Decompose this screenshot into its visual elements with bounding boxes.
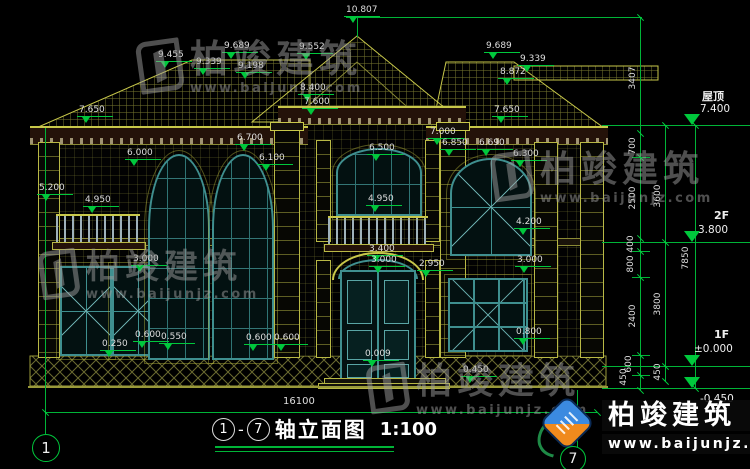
level-name: 2F bbox=[714, 209, 729, 222]
elevation-marker: 3.000 bbox=[517, 256, 543, 265]
elevation-marker: 3.000 bbox=[371, 256, 397, 265]
elevation-marker: 6.690 bbox=[479, 139, 505, 148]
elevation-value: 10.807 bbox=[346, 5, 378, 15]
level-marker-triangle bbox=[684, 231, 700, 242]
elevation-value: 8.872 bbox=[500, 67, 526, 77]
vertical-dimension: 450 bbox=[619, 368, 629, 385]
elevation-value: 7.000 bbox=[430, 127, 456, 137]
dimension-line bbox=[357, 17, 358, 37]
elevation-value: 4.200 bbox=[516, 217, 542, 227]
watermark-url: www.baijunjz.com bbox=[86, 287, 259, 302]
elevation-value: 6.500 bbox=[369, 143, 395, 153]
dimension-line bbox=[215, 451, 394, 452]
watermark-url: www.baijunjz.com bbox=[540, 191, 713, 206]
elevation-marker: 0.550 bbox=[161, 333, 187, 342]
dimension-line bbox=[602, 242, 750, 243]
level-name: 1F bbox=[714, 328, 729, 341]
elevation-marker: 9.689 bbox=[486, 42, 512, 51]
level-marker-triangle bbox=[684, 114, 700, 125]
elevation-marker: 0.009 bbox=[365, 350, 391, 359]
elevation-marker: 6.500 bbox=[369, 144, 395, 153]
elevation-value: 4.950 bbox=[85, 195, 111, 205]
title-dash: - bbox=[238, 420, 244, 439]
elevation-value: 0.550 bbox=[161, 332, 187, 342]
elevation-marker: 4.200 bbox=[516, 218, 542, 227]
title-scale: 1:100 bbox=[380, 419, 437, 440]
watermark: 柏竣建筑www.baijunjz.com bbox=[492, 152, 713, 206]
vertical-dimension: 450 bbox=[653, 363, 663, 380]
watermark-brand: 柏竣建筑 bbox=[602, 400, 750, 431]
watermark: 柏竣建筑www.baijunjz.com bbox=[40, 250, 259, 302]
drawing-title: 1-7 轴立面图 1:100 bbox=[212, 414, 437, 444]
watermark-brand: 柏竣建筑 bbox=[416, 364, 589, 400]
axis-bubble-1: 1 bbox=[32, 434, 60, 462]
elevation-value: 9.339 bbox=[520, 54, 546, 64]
elevation-marker: 3.400 bbox=[369, 245, 395, 254]
elevation-value: 3.400 bbox=[369, 244, 395, 254]
elevation-value: 0.009 bbox=[365, 349, 391, 359]
elevation-value: 0.600 bbox=[246, 333, 272, 343]
elevation-marker: 8.872 bbox=[500, 68, 526, 77]
elevation-value: 6.850 bbox=[442, 138, 468, 148]
elevation-marker: 9.339 bbox=[520, 55, 546, 64]
title-axis-to-bubble: 7 bbox=[247, 418, 270, 441]
level-marker-triangle bbox=[684, 377, 700, 388]
elevation-value: 7.600 bbox=[304, 97, 330, 107]
watermark-brand: 柏竣建筑 bbox=[190, 40, 363, 78]
elevation-marker: 4.950 bbox=[85, 196, 111, 205]
elevation-value: 6.000 bbox=[127, 148, 153, 158]
elevation-marker: 7.000 bbox=[430, 128, 456, 137]
watermark-brand: 柏竣建筑 bbox=[86, 250, 259, 284]
vertical-dimension: 2400 bbox=[628, 305, 638, 328]
overall-dimension: 16100 bbox=[283, 396, 315, 407]
elevation-value: 0.250 bbox=[102, 339, 128, 349]
elevation-value: 6.690 bbox=[479, 138, 505, 148]
elevation-marker: 0.800 bbox=[516, 328, 542, 337]
elevation-marker: 2.950 bbox=[419, 260, 445, 269]
cad-elevation-drawing: 10.8079.5529.4559.3399.6899.1989.6899.33… bbox=[0, 0, 750, 469]
baijun-logo-icon bbox=[37, 248, 81, 301]
dimension-line bbox=[602, 125, 750, 126]
watermark-brand: 柏竣建筑 bbox=[540, 152, 713, 188]
elevation-marker: 0.600 bbox=[274, 334, 300, 343]
elevation-value: 5.200 bbox=[39, 183, 65, 193]
level-marker-triangle bbox=[684, 355, 700, 366]
vertical-dimension: 3407 bbox=[628, 67, 638, 90]
elevation-value: 0.600 bbox=[135, 330, 161, 340]
baijun-logo-icon bbox=[365, 361, 411, 414]
elevation-marker: 6.000 bbox=[127, 149, 153, 158]
axis-bubble-7: 7 bbox=[560, 446, 586, 469]
baijun-logo-icon bbox=[135, 37, 186, 95]
watermark: 柏竣建筑www.baijunjz.com bbox=[138, 40, 363, 96]
elevation-value: 2.950 bbox=[419, 259, 445, 269]
elevation-value: 9.689 bbox=[486, 41, 512, 51]
elevation-value: 0.800 bbox=[516, 327, 542, 337]
elevation-marker: 7.650 bbox=[494, 106, 520, 115]
watermark-url: www.baijunjz.com bbox=[602, 434, 750, 454]
vertical-dimension: 400 bbox=[626, 235, 636, 252]
level-value: ±0.000 bbox=[694, 343, 733, 355]
level-value: 7.400 bbox=[700, 103, 730, 115]
elevation-value: 0.600 bbox=[274, 333, 300, 343]
dimension-line bbox=[215, 446, 394, 448]
level-name: 屋顶 bbox=[702, 88, 724, 104]
elevation-marker: 7.600 bbox=[304, 98, 330, 107]
elevation-value: 4.950 bbox=[368, 194, 394, 204]
elevation-marker: 6.700 bbox=[237, 134, 263, 143]
elevation-marker: 7.650 bbox=[79, 106, 105, 115]
elevation-marker: 4.950 bbox=[368, 195, 394, 204]
baijun-logo-icon bbox=[489, 149, 535, 202]
title-text: 轴立面图 bbox=[275, 414, 367, 444]
elevation-marker: 0.600 bbox=[135, 331, 161, 340]
vertical-dimension: 800 bbox=[626, 255, 636, 272]
elevation-marker: 0.250 bbox=[102, 340, 128, 349]
elevation-marker: 10.807 bbox=[346, 6, 378, 15]
title-axis-from-bubble: 1 bbox=[212, 418, 235, 441]
watermark-url: www.baijunjz.com bbox=[190, 81, 363, 96]
elevation-value: 6.100 bbox=[259, 153, 285, 163]
elevation-value: 7.650 bbox=[79, 105, 105, 115]
vertical-dimension: 7850 bbox=[681, 247, 691, 270]
elevation-marker: 6.850 bbox=[442, 139, 468, 148]
elevation-marker: 6.100 bbox=[259, 154, 285, 163]
elevation-marker: 5.200 bbox=[39, 184, 65, 193]
elevation-value: 3.000 bbox=[371, 255, 397, 265]
level-value: 3.800 bbox=[698, 224, 728, 236]
elevation-value: 3.000 bbox=[517, 255, 543, 265]
elevation-marker: 0.600 bbox=[246, 334, 272, 343]
dimension-line bbox=[602, 388, 750, 389]
dimension-line bbox=[346, 17, 642, 18]
annotation-layer: 10.8079.5529.4559.3399.6899.1989.6899.33… bbox=[0, 0, 750, 469]
elevation-value: 6.700 bbox=[237, 133, 263, 143]
elevation-value: 7.650 bbox=[494, 105, 520, 115]
vertical-dimension: 3800 bbox=[653, 293, 663, 316]
